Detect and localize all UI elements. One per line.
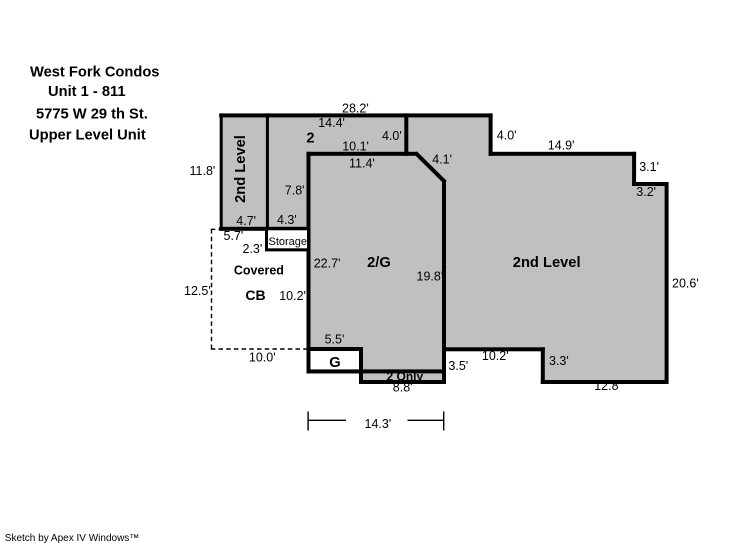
svg-text:12.5': 12.5'	[184, 284, 211, 298]
svg-text:3.5': 3.5'	[448, 359, 468, 373]
svg-text:20.6': 20.6'	[672, 277, 699, 291]
svg-text:Upper Level Unit: Upper Level Unit	[29, 127, 146, 143]
svg-text:5775 W 29 th St.: 5775 W 29 th St.	[36, 106, 148, 122]
svg-text:4.0': 4.0'	[497, 129, 517, 143]
svg-text:4.7': 4.7'	[236, 214, 256, 228]
svg-text:2.3': 2.3'	[243, 242, 263, 256]
svg-text:10.1': 10.1'	[342, 140, 369, 154]
svg-text:G: G	[329, 355, 340, 371]
svg-text:3.2': 3.2'	[636, 185, 656, 199]
svg-text:22.7': 22.7'	[314, 257, 341, 271]
svg-text:5.5': 5.5'	[325, 333, 345, 347]
svg-text:28.2': 28.2'	[342, 102, 369, 116]
svg-text:14.3': 14.3'	[365, 417, 392, 431]
svg-text:4.0': 4.0'	[382, 129, 402, 143]
svg-text:11.4': 11.4'	[349, 157, 375, 171]
svg-text:2: 2	[306, 131, 314, 147]
svg-text:Sketch by Apex IV Windows™: Sketch by Apex IV Windows™	[5, 533, 140, 544]
svg-text:Unit 1 - 811: Unit 1 - 811	[48, 84, 126, 100]
svg-text:7.8': 7.8'	[285, 183, 305, 197]
svg-text:4.1': 4.1'	[432, 153, 452, 167]
svg-text:14.9': 14.9'	[548, 139, 575, 153]
svg-text:5.7': 5.7'	[224, 229, 244, 243]
svg-text:2 Only: 2 Only	[387, 369, 424, 383]
svg-text:19.8': 19.8'	[417, 270, 444, 284]
svg-text:10.2': 10.2'	[482, 349, 509, 363]
svg-text:3.1': 3.1'	[639, 160, 659, 174]
svg-text:Covered: Covered	[234, 264, 284, 278]
svg-text:12.8': 12.8'	[594, 379, 621, 393]
svg-text:3.3': 3.3'	[549, 354, 569, 368]
svg-text:2/G: 2/G	[367, 255, 391, 271]
svg-text:Storage: Storage	[269, 236, 308, 248]
svg-text:CB: CB	[245, 287, 265, 303]
svg-text:2nd Level: 2nd Level	[513, 255, 581, 271]
svg-text:West Fork Condos: West Fork Condos	[30, 65, 159, 81]
svg-text:10.2': 10.2'	[279, 289, 306, 303]
svg-text:11.8': 11.8'	[190, 164, 216, 178]
svg-text:14.4': 14.4'	[318, 116, 345, 130]
svg-text:10.0': 10.0'	[249, 351, 276, 365]
svg-text:4.3': 4.3'	[277, 213, 297, 227]
svg-text:2nd Level: 2nd Level	[233, 135, 249, 203]
